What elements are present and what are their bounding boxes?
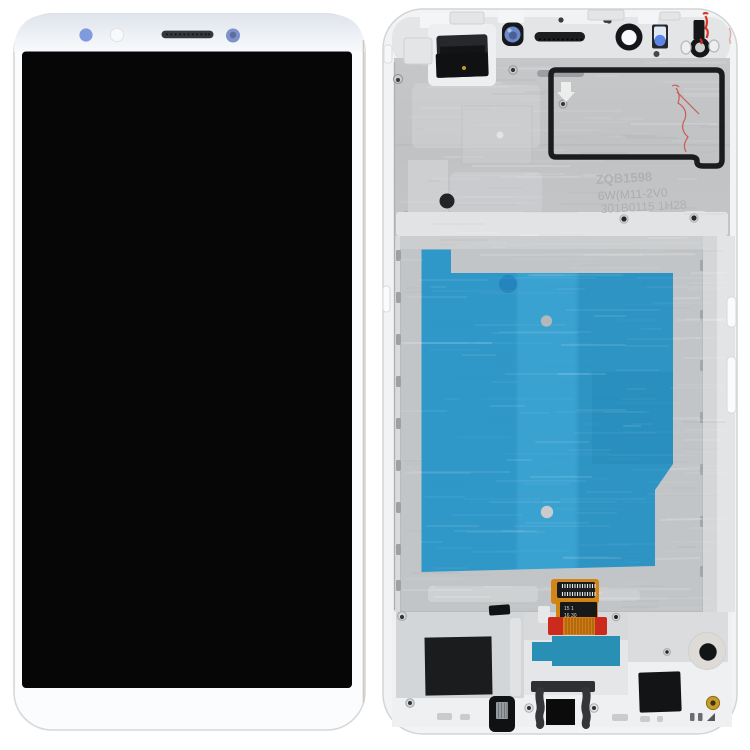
svg-text:ZQB1598: ZQB1598 [595,169,652,187]
svg-text:15 1: 15 1 [564,606,574,612]
